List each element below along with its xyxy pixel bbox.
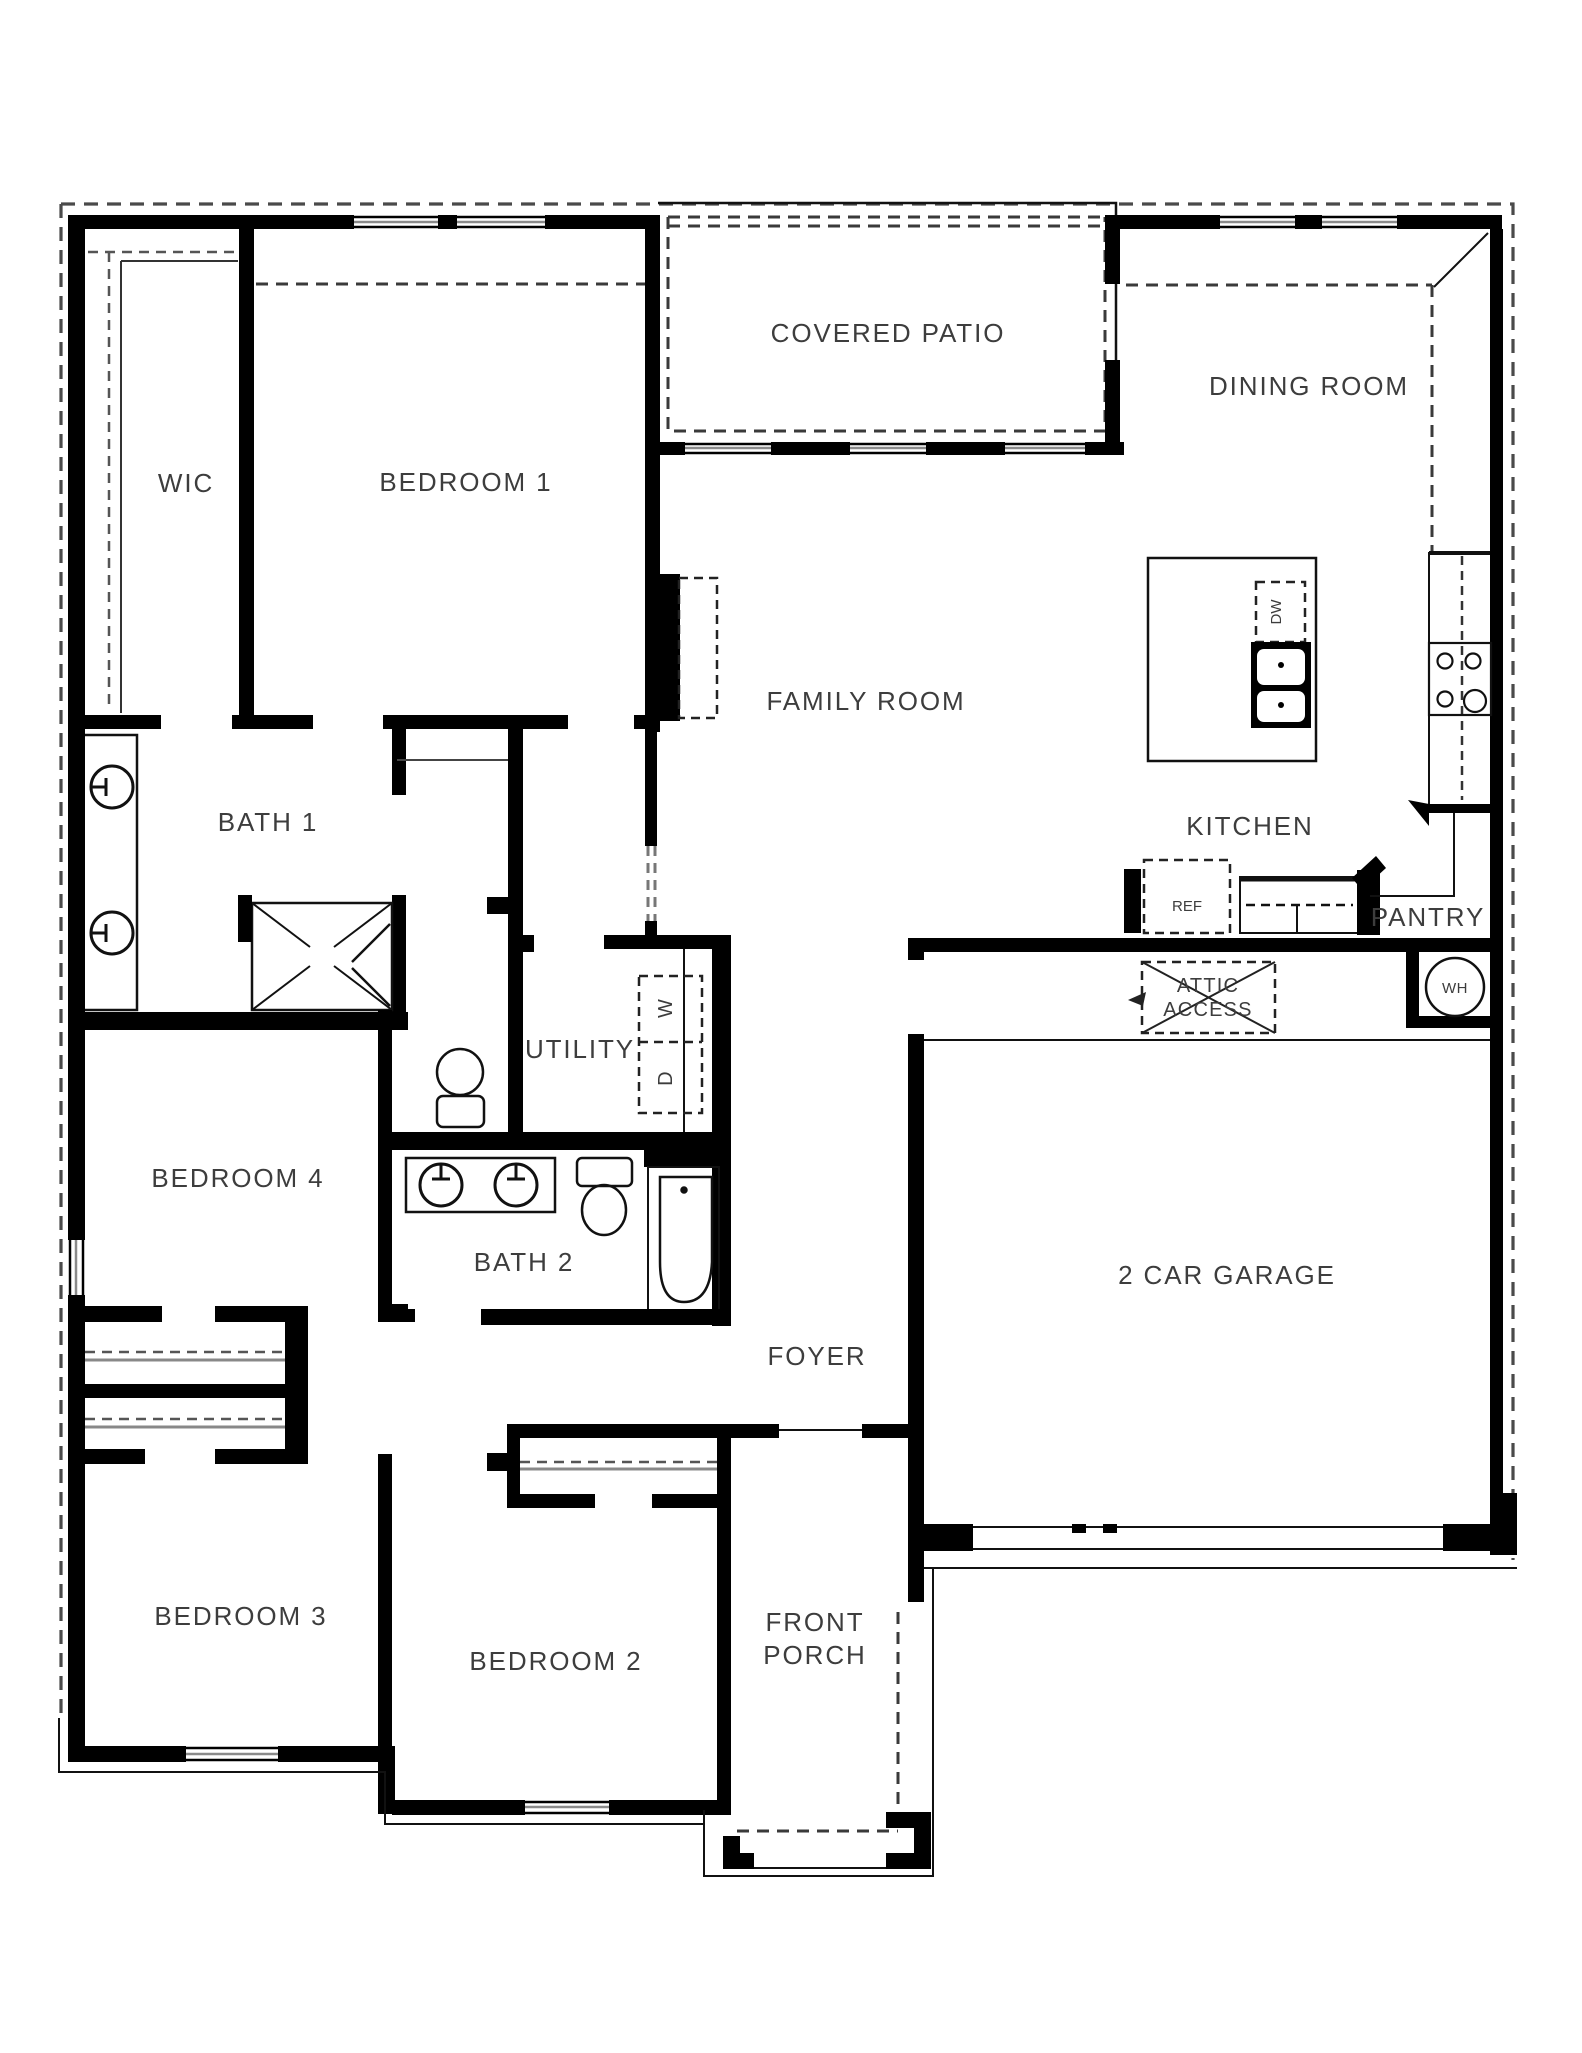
svg-text:PANTRY: PANTRY: [1371, 902, 1485, 932]
svg-text:BATH 1: BATH 1: [218, 807, 319, 837]
svg-text:FAMILY ROOM: FAMILY ROOM: [766, 686, 965, 716]
svg-text:KITCHEN: KITCHEN: [1186, 811, 1313, 841]
svg-text:REF: REF: [1172, 898, 1202, 915]
svg-text:BEDROOM 3: BEDROOM 3: [154, 1601, 327, 1631]
svg-text:D: D: [655, 1070, 677, 1086]
svg-text:W: W: [655, 998, 677, 1018]
svg-text:PORCH: PORCH: [763, 1640, 866, 1670]
svg-text:BEDROOM 4: BEDROOM 4: [151, 1163, 324, 1193]
svg-text:WIC: WIC: [158, 468, 214, 498]
svg-text:FOYER: FOYER: [767, 1341, 866, 1371]
svg-text:WH: WH: [1442, 980, 1468, 997]
svg-text:2 CAR GARAGE: 2 CAR GARAGE: [1118, 1260, 1336, 1290]
svg-text:ATTIC: ATTIC: [1177, 975, 1239, 997]
svg-text:BEDROOM 1: BEDROOM 1: [379, 467, 552, 497]
svg-text:DINING ROOM: DINING ROOM: [1209, 371, 1409, 401]
svg-text:FRONT: FRONT: [765, 1607, 864, 1637]
svg-text:COVERED PATIO: COVERED PATIO: [771, 318, 1006, 348]
svg-text:ACCESS: ACCESS: [1163, 999, 1252, 1021]
svg-text:BATH 2: BATH 2: [474, 1247, 575, 1277]
svg-text:DW: DW: [1268, 599, 1285, 625]
svg-text:UTILITY: UTILITY: [525, 1034, 635, 1064]
svg-text:BEDROOM 2: BEDROOM 2: [469, 1646, 642, 1676]
